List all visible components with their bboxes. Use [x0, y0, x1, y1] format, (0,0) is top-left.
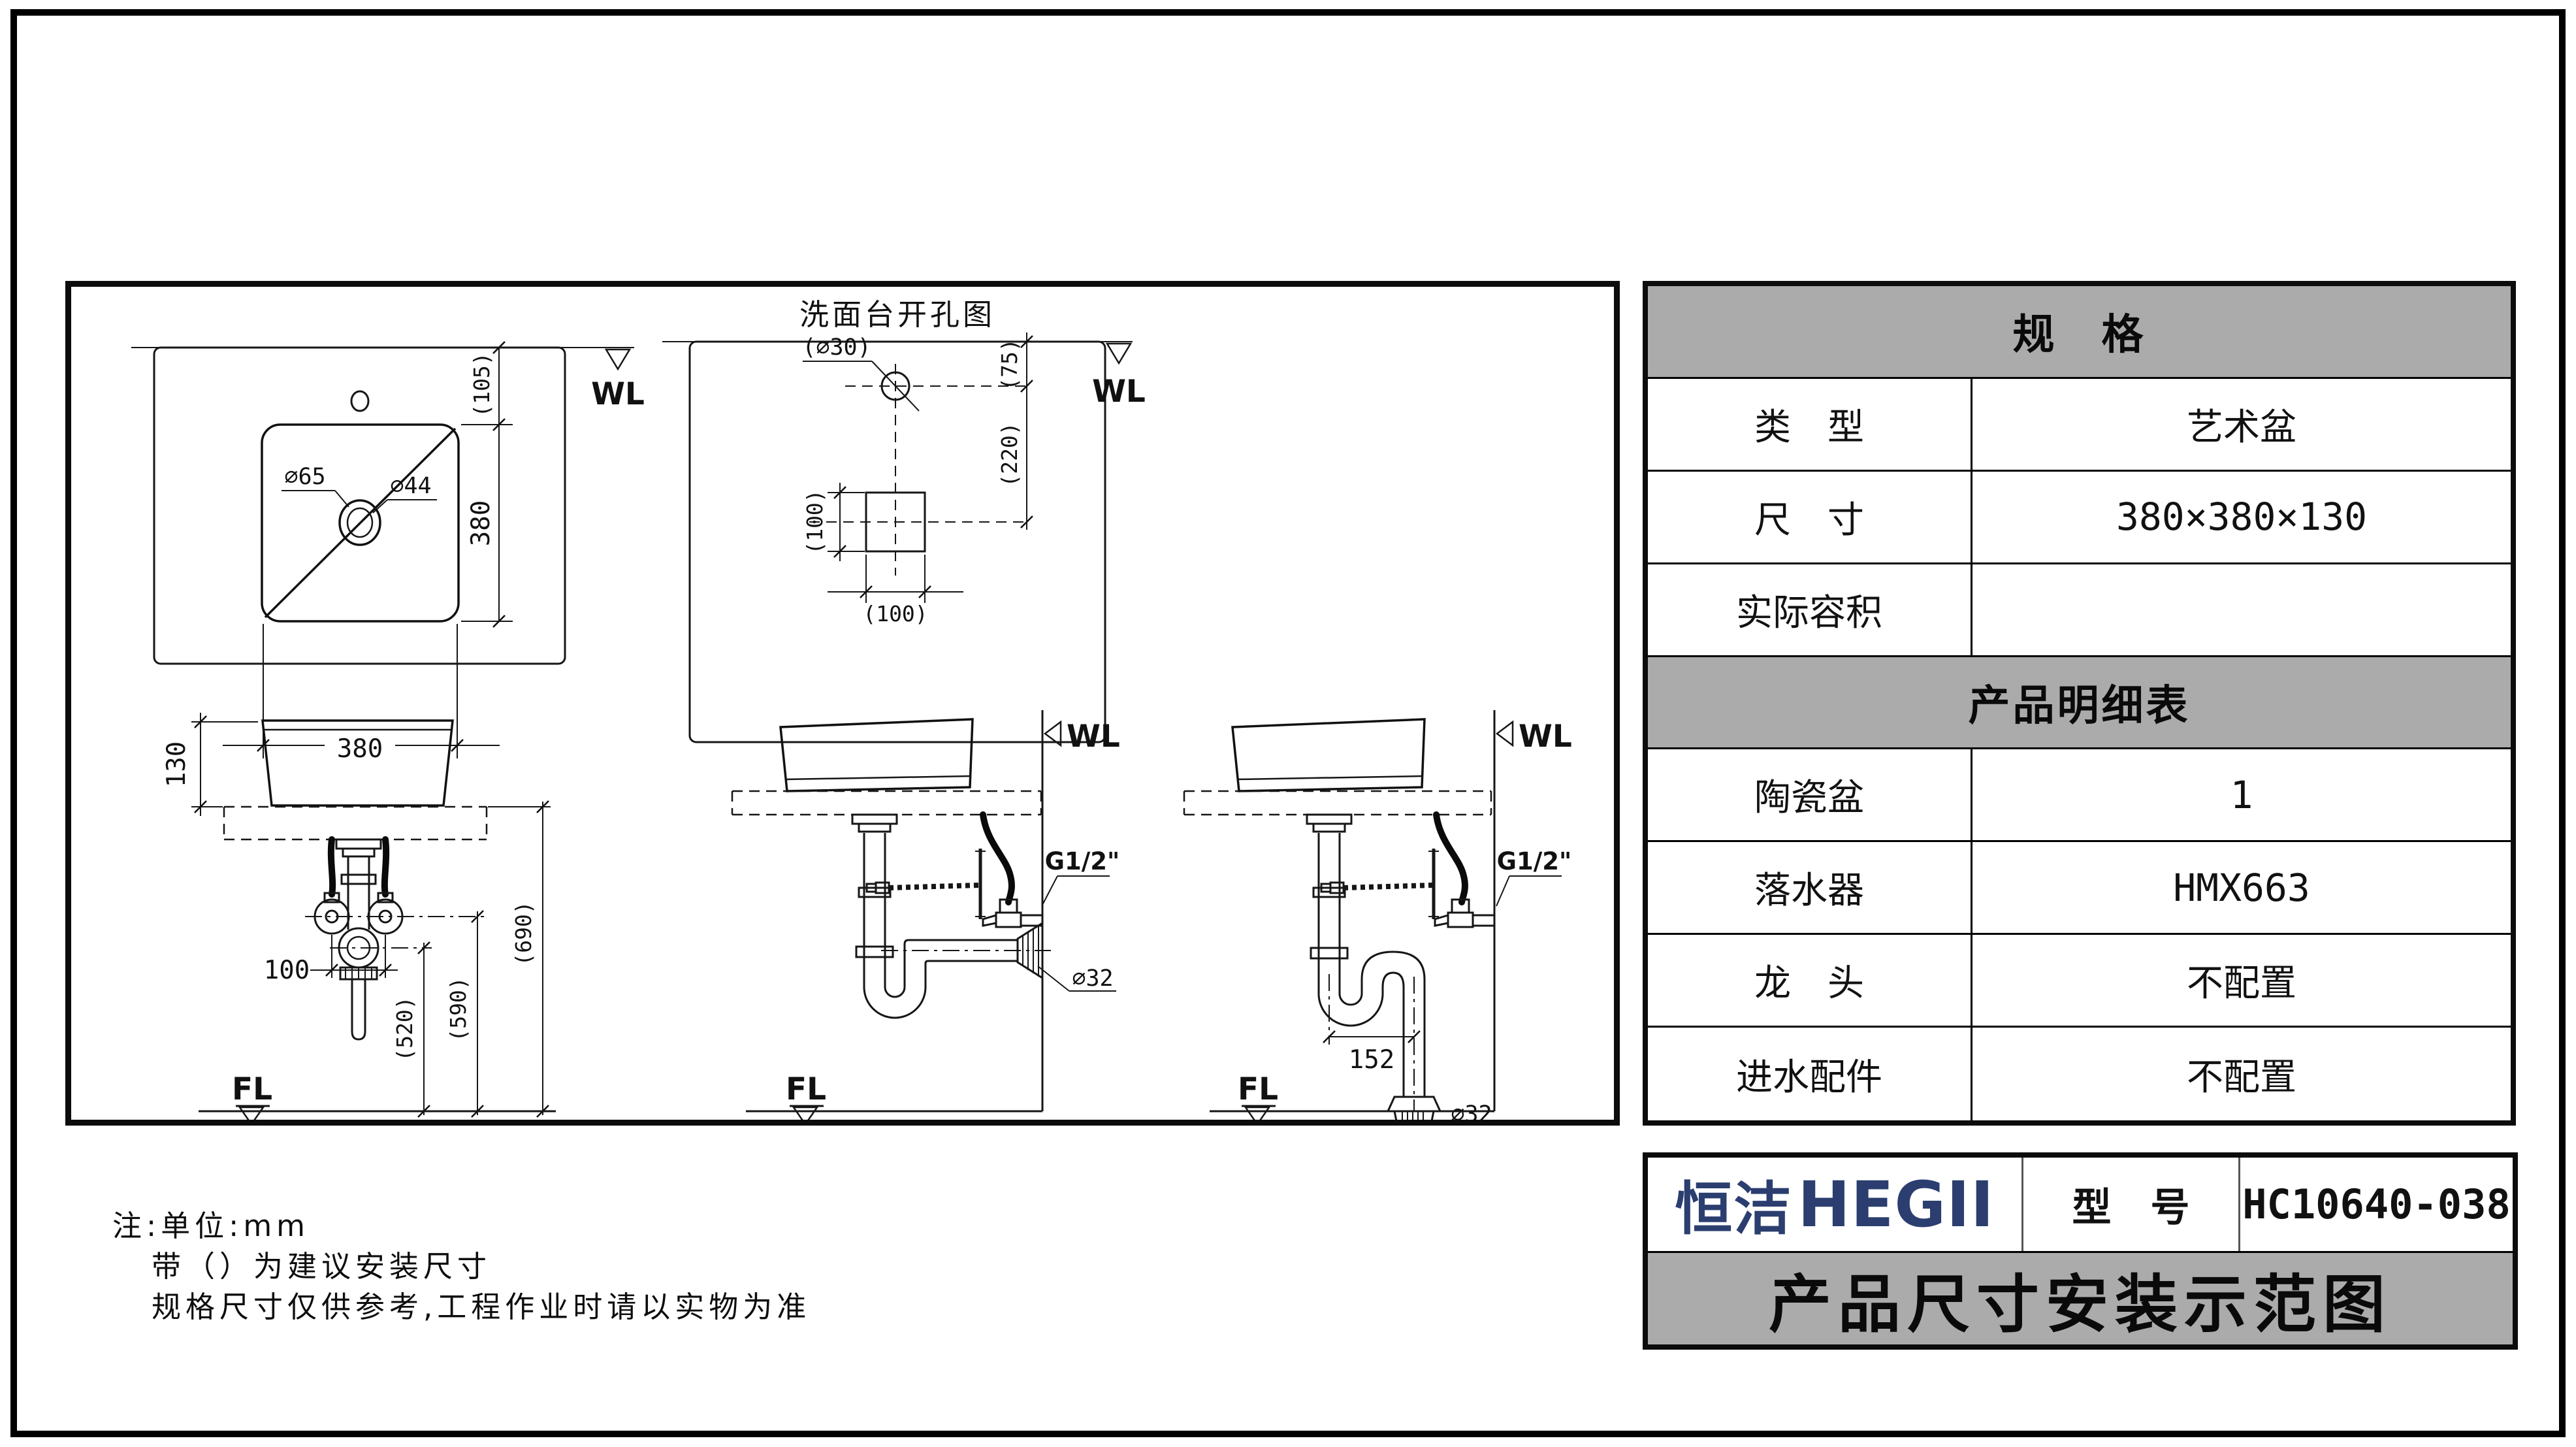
row-label-drain: 落水器	[1648, 842, 1972, 933]
dim-wall-to-hole: (75)	[997, 338, 1022, 390]
table-row: 陶瓷盆 1	[1648, 749, 2511, 842]
installation-drawing-sheet: WL ∅65 ∅44 (105) 380	[0, 0, 2576, 1447]
thread-size-label: G1/2"	[1045, 847, 1120, 875]
drain-inner-dia-label: ∅44	[390, 473, 431, 499]
dim-basin-height: 130	[162, 741, 191, 787]
row-value-size: 380×380×130	[1972, 472, 2511, 562]
row-value-drain: HMX663	[1972, 842, 2511, 933]
table-row: 尺 寸 380×380×130	[1648, 472, 2511, 564]
table-row: 进水配件 不配置	[1648, 1028, 2511, 1120]
top-view-drawing: WL ∅65 ∅44 (105) 380	[131, 342, 645, 764]
wall-line-label: WL	[1092, 374, 1146, 410]
dim-valve-spacing: 100	[264, 956, 310, 985]
table-row: 实际容积	[1648, 564, 2511, 657]
floor-line-label: FL	[786, 1071, 826, 1107]
cutout-title: 洗面台开孔图	[799, 297, 995, 332]
row-label-inlet: 进水配件	[1648, 1028, 1972, 1120]
wall-line-label: WL	[591, 376, 645, 412]
detail-header: 产品明细表	[1648, 657, 2511, 750]
row-label-basin: 陶瓷盆	[1648, 749, 1972, 840]
title-block: 恒洁 HEGII 型 号 HC10640-038 产品尺寸安装示范图	[1643, 1152, 2518, 1350]
dim-hole-to-drain: (220)	[997, 422, 1022, 487]
notes: 注:单位:mm 带（）为建议安装尺寸 规格尺寸仅供参考,工程作业时请以实物为准	[112, 1206, 811, 1327]
table-row: 龙 头 不配置	[1648, 935, 2511, 1028]
wall-line-label: WL	[1067, 719, 1120, 755]
note-line-3: 规格尺寸仅供参考,工程作业时请以实物为准	[112, 1287, 811, 1327]
row-value-inlet: 不配置	[1972, 1028, 2511, 1120]
row-label-type: 类 型	[1648, 379, 1972, 470]
drawing-panel: WL ∅65 ∅44 (105) 380	[65, 281, 1620, 1126]
model-number: HC10640-038	[2240, 1158, 2513, 1251]
dim-wall-offset: (105)	[469, 352, 494, 417]
row-value-type: 艺术盆	[1972, 379, 2511, 470]
dim-square-height: (100)	[802, 489, 828, 554]
dim-valve-height: (590)	[445, 977, 471, 1041]
sheet-title: 产品尺寸安装示范图	[1648, 1251, 2513, 1344]
brand-name-en: HEGII	[1797, 1168, 1994, 1241]
dim-basin-width: 380	[337, 734, 383, 764]
dim-square-width: (100)	[863, 601, 927, 626]
dim-counter-height: (690)	[511, 901, 536, 966]
row-value-basin: 1	[1972, 749, 2511, 840]
note-line-1: 注:单位:mm	[112, 1206, 811, 1246]
brand-name-cn: 恒洁	[1675, 1163, 1792, 1246]
side-view-floor-drain: WL 152 ∅32	[1184, 710, 1572, 1120]
dim-trap-height: (520)	[392, 996, 417, 1061]
thread-size-label: G1/2"	[1497, 847, 1572, 875]
dim-trap-offset: 152	[1349, 1045, 1394, 1075]
faucet-hole-dia-label: (∅30)	[802, 334, 871, 361]
drain-dia-label: ∅32	[1072, 966, 1113, 992]
row-label-faucet: 龙 头	[1648, 935, 1972, 1026]
row-value-capacity	[1972, 564, 2511, 655]
dim-basin-depth: 380	[466, 500, 496, 546]
table-row: 落水器 HMX663	[1648, 842, 2511, 935]
side-view-wall-drain: WL ∅32	[732, 710, 1120, 1120]
spec-table: 规 格 类 型 艺术盆 尺 寸 380×380×130 实际容积 产品明细表 陶…	[1643, 281, 2516, 1126]
row-label-size: 尺 寸	[1648, 472, 1972, 562]
drain-outer-dia-label: ∅65	[284, 464, 325, 490]
note-line-2: 带（）为建议安装尺寸	[112, 1246, 811, 1287]
row-value-faucet: 不配置	[1972, 935, 2511, 1026]
front-view-drawing: 130	[162, 713, 556, 1120]
floor-line-label: FL	[1238, 1071, 1278, 1107]
cutout-view-drawing: 洗面台开孔图 WL (∅30) (100)	[662, 297, 1146, 742]
row-label-capacity: 实际容积	[1648, 564, 1972, 655]
table-row: 类 型 艺术盆	[1648, 379, 2511, 472]
brand-logo: 恒洁 HEGII	[1648, 1158, 2023, 1251]
model-label: 型 号	[2023, 1158, 2240, 1251]
floor-line-label: FL	[232, 1071, 272, 1107]
wall-line-label: WL	[1519, 719, 1572, 755]
spec-header: 规 格	[1648, 286, 2511, 379]
